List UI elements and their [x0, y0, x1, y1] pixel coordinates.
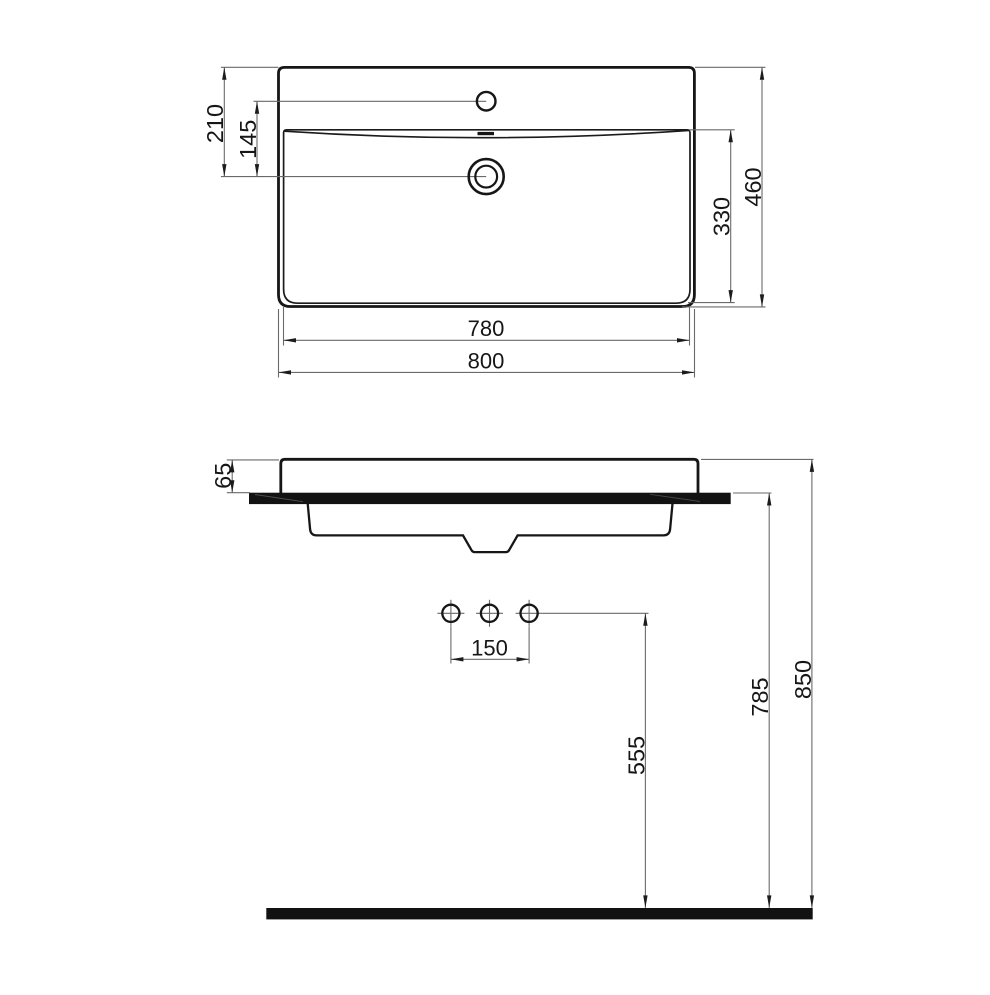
svg-text:780: 780 — [468, 316, 505, 341]
svg-text:210: 210 — [202, 104, 228, 143]
svg-text:785: 785 — [747, 677, 773, 716]
svg-text:330: 330 — [709, 197, 735, 236]
svg-text:150: 150 — [471, 635, 508, 660]
svg-text:800: 800 — [468, 349, 505, 374]
svg-text:460: 460 — [740, 167, 766, 206]
svg-text:850: 850 — [790, 660, 816, 699]
svg-text:65: 65 — [210, 463, 236, 489]
svg-text:145: 145 — [235, 120, 261, 159]
svg-text:555: 555 — [623, 736, 649, 775]
